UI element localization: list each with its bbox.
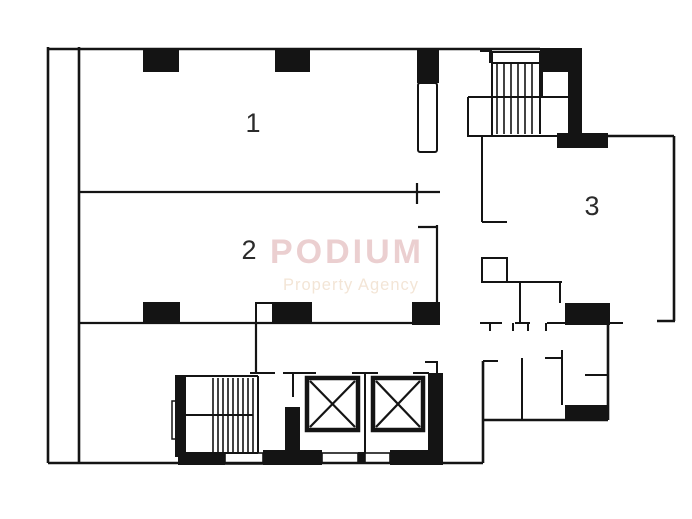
floorplan-canvas: PODIUM Property Agency [0, 0, 692, 519]
stair-wall [175, 376, 186, 457]
stair-top-treads [497, 63, 532, 134]
room3-walls [480, 137, 623, 331]
column [143, 48, 179, 72]
column [285, 407, 300, 453]
stair-top-landing [492, 52, 540, 63]
floorplan-svg: PODIUM Property Agency [0, 0, 692, 519]
column [273, 302, 312, 323]
lobby-walls [250, 373, 429, 453]
room-1-label: 1 [245, 108, 260, 138]
bottom-door [365, 453, 390, 463]
pilaster [418, 83, 437, 152]
bottom-wall-fill [178, 452, 225, 465]
watermark-title: PODIUM [270, 233, 424, 271]
bottom-wall-fill [358, 452, 365, 463]
column [275, 48, 310, 72]
stair-shaft-wall [568, 48, 582, 136]
room-3-label: 3 [584, 191, 599, 221]
elevator-2-icon [373, 378, 423, 430]
column [143, 302, 180, 323]
bottom-door [322, 453, 358, 463]
column [557, 133, 608, 148]
bottom-wall-fill [390, 450, 438, 465]
openings-layer [172, 83, 437, 464]
room3-closet [482, 258, 507, 282]
watermark-subtitle: Property Agency [283, 276, 419, 294]
staircase-bottom [175, 376, 258, 453]
stair-bottom-frame [175, 376, 258, 453]
room-2-label: 2 [241, 235, 256, 265]
column [565, 303, 610, 325]
column [412, 302, 440, 325]
bottom-wall-fill [263, 450, 322, 465]
wall-opening [256, 303, 273, 323]
column [417, 48, 439, 83]
watermark: PODIUM Property Agency [270, 233, 424, 294]
column [565, 405, 608, 420]
elevator-1-icon [307, 378, 358, 430]
